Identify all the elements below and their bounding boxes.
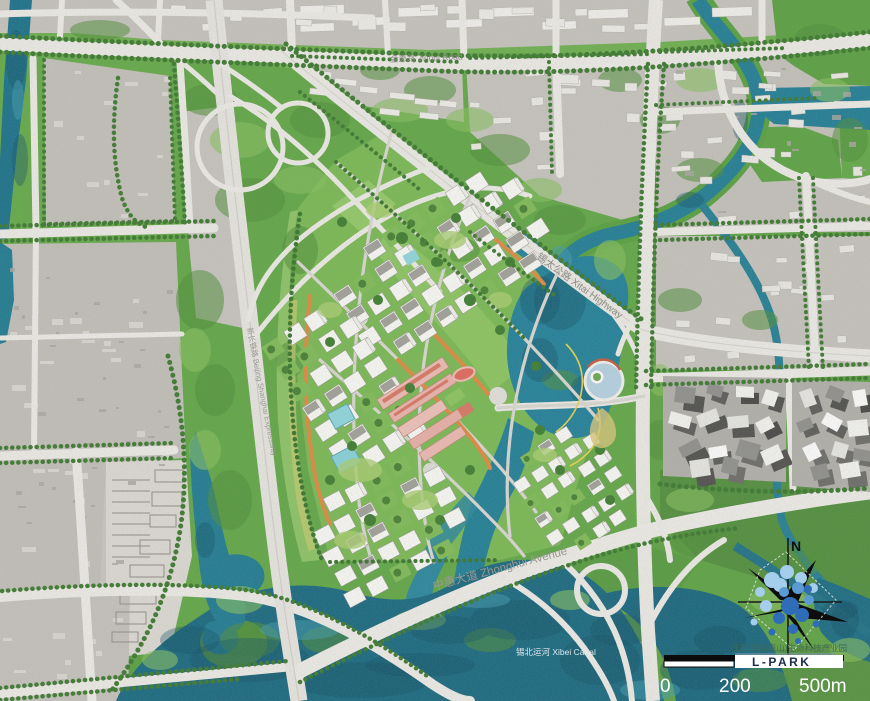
svg-text:N: N bbox=[791, 538, 801, 554]
svg-text:江苏无锡(惠山)生命科技产业园: 江苏无锡(惠山)生命科技产业园 bbox=[731, 643, 847, 653]
svg-text:L-PARK: L-PARK bbox=[752, 655, 811, 669]
svg-text:锡北运河 Xibei Canal: 锡北运河 Xibei Canal bbox=[516, 647, 596, 657]
svg-text:0: 0 bbox=[660, 676, 671, 697]
svg-text:200: 200 bbox=[719, 676, 751, 697]
svg-text:500m: 500m bbox=[799, 676, 847, 697]
